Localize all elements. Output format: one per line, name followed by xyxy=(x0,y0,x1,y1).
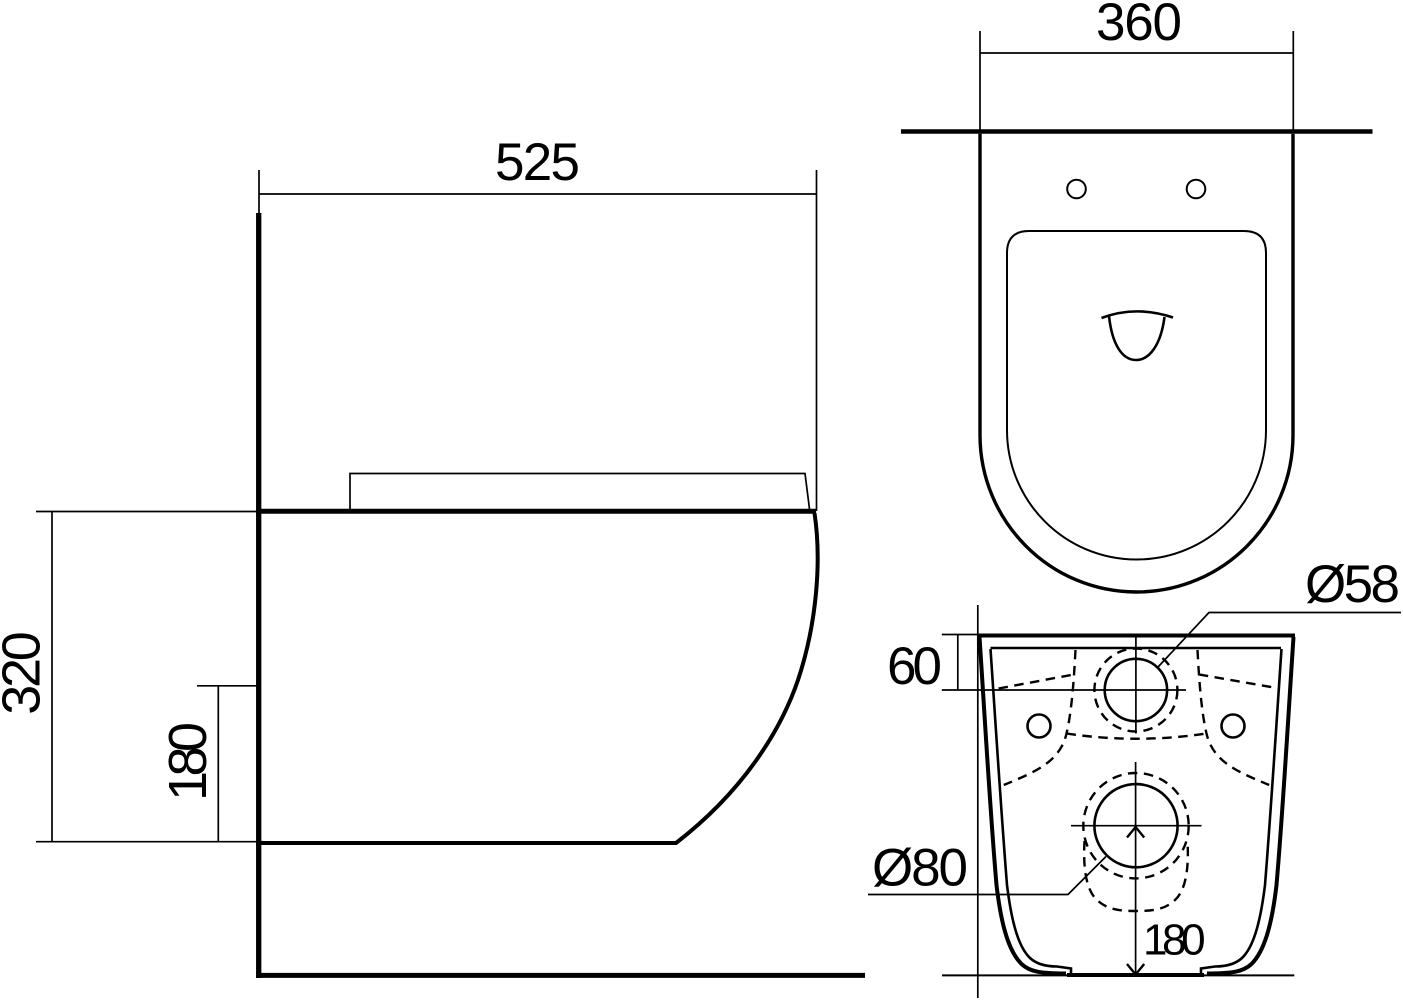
svg-text:320: 320 xyxy=(0,631,52,715)
svg-text:Ø58: Ø58 xyxy=(1305,555,1400,614)
svg-text:525: 525 xyxy=(495,133,580,192)
svg-text:360: 360 xyxy=(1096,0,1182,52)
svg-text:180: 180 xyxy=(1143,916,1206,965)
svg-text:60: 60 xyxy=(887,637,942,696)
svg-text:Ø80: Ø80 xyxy=(872,839,968,898)
svg-text:180: 180 xyxy=(158,722,218,801)
